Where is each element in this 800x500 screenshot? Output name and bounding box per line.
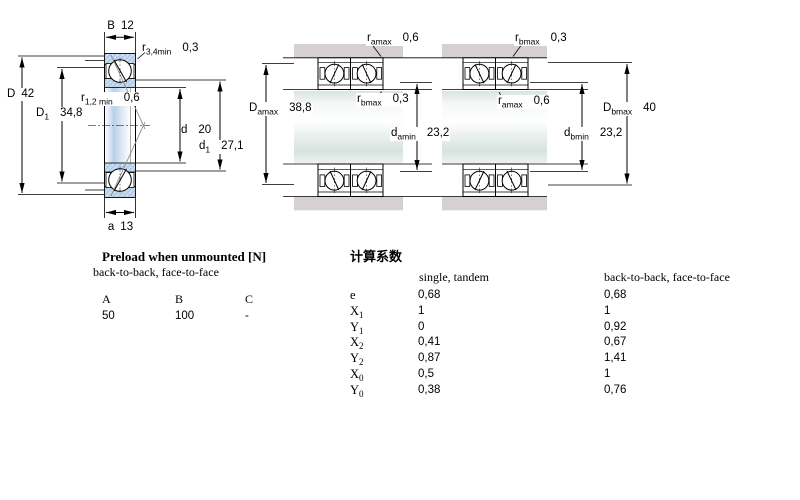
label-r-amax-mid: ramax0,6 xyxy=(497,95,551,109)
label-r-bmax-mid: rbmax0,3 xyxy=(356,93,410,107)
preload-value-B: 100 xyxy=(175,310,194,323)
factor-row-X2: X20,410,67 xyxy=(350,335,800,351)
preload-subtitle: back-to-back, face-to-face xyxy=(93,266,219,279)
preload-value-C: - xyxy=(245,310,249,323)
factor-row-Y2: Y20,871,41 xyxy=(350,351,800,367)
bearing-datasheet-page: B12 r3,4min0,3 D42 D134,8 r1,2 min0,6 d2… xyxy=(0,0,800,500)
preload-col-C: C xyxy=(245,293,253,306)
preload-col-B: B xyxy=(175,293,183,306)
label-r-amax-top: ramax0,6 xyxy=(366,32,420,46)
label-r12: r1,2 min0,6 xyxy=(80,92,141,106)
label-D1: D134,8 xyxy=(35,107,83,121)
label-D-bmax: Dbmax40 xyxy=(602,102,657,116)
label-d1: d127,1 xyxy=(198,140,245,154)
preload-title: Preload when unmounted [N] xyxy=(102,250,266,264)
pair-b-top xyxy=(463,58,528,90)
housing-bottom-b xyxy=(442,197,547,211)
factor-row-Y1: Y100,92 xyxy=(350,320,800,336)
factors-title: 计算系数 xyxy=(350,250,402,264)
label-d-amin: damin23,2 xyxy=(390,127,450,141)
factor-row-Y0: Y00,380,76 xyxy=(350,383,800,399)
label-d-bmin: dbmin23,2 xyxy=(563,127,623,141)
pair-a-bottom xyxy=(318,164,383,197)
label-r34: r3,4min0,3 xyxy=(142,42,198,56)
factor-row-e: e0,680,68 xyxy=(350,288,800,304)
factors-col2-header: back-to-back, face-to-face xyxy=(604,271,730,284)
label-d: d20 xyxy=(181,124,211,137)
label-a: a13 xyxy=(102,221,139,234)
label-r-bmax-top: rbmax0,3 xyxy=(514,32,568,46)
factors-col1-header: single, tandem xyxy=(419,271,489,284)
factor-row-X0: X00,51 xyxy=(350,367,800,383)
pair-a-top xyxy=(318,58,383,90)
preload-value-A: 50 xyxy=(102,310,115,323)
pair-b-bottom xyxy=(463,164,528,197)
factor-row-X1: X111 xyxy=(350,304,800,320)
housing-bottom-a xyxy=(294,197,403,211)
label-D: D42 xyxy=(6,88,35,101)
label-B: B12 xyxy=(102,20,139,33)
label-D-amax: Damax38,8 xyxy=(248,102,313,116)
preload-col-A: A xyxy=(102,293,111,306)
